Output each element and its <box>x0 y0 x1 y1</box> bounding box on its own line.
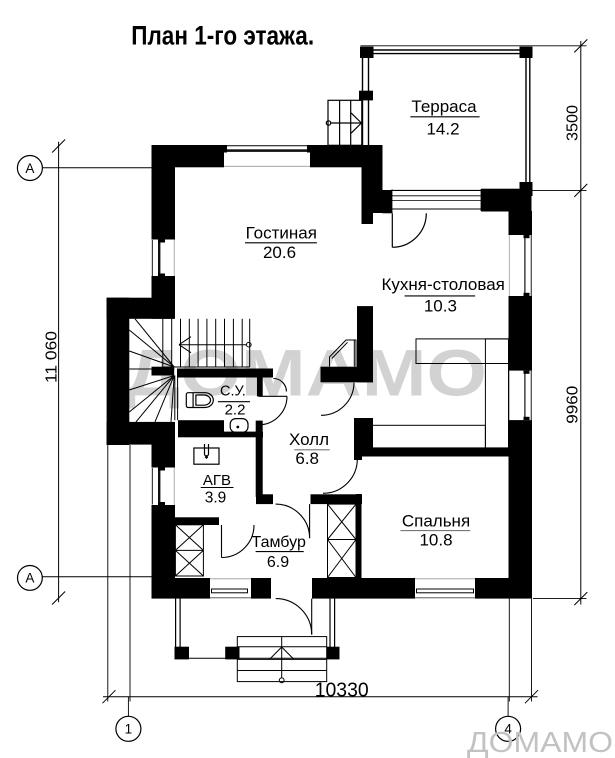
svg-text:6.9: 6.9 <box>267 554 289 571</box>
svg-text:Холл: Холл <box>289 430 329 449</box>
svg-text:10330: 10330 <box>315 680 369 702</box>
svg-text:1: 1 <box>125 722 133 737</box>
svg-text:Терраса: Терраса <box>411 97 477 116</box>
svg-text:3500: 3500 <box>565 105 582 141</box>
svg-text:С.У.: С.У. <box>220 384 246 400</box>
svg-text:План 1-го этажа.: План 1-го этажа. <box>131 21 314 51</box>
svg-text:Гостиная: Гостиная <box>246 224 317 243</box>
svg-text:10.3: 10.3 <box>424 297 457 316</box>
svg-text:А: А <box>25 571 34 586</box>
svg-text:ДОМАМО: ДОМАМО <box>467 727 613 758</box>
svg-text:Кухня-столовая: Кухня-столовая <box>381 275 504 294</box>
svg-text:3.9: 3.9 <box>205 490 227 507</box>
svg-text:Спальня: Спальня <box>402 512 470 531</box>
svg-text:11 060: 11 060 <box>44 331 61 383</box>
svg-text:2.2: 2.2 <box>225 402 246 419</box>
svg-text:6.8: 6.8 <box>295 449 319 468</box>
svg-text:АГВ: АГВ <box>203 472 231 489</box>
svg-text:20.6: 20.6 <box>263 243 296 262</box>
svg-text:14.2: 14.2 <box>426 120 459 139</box>
svg-text:Тамбур: Тамбур <box>252 534 306 551</box>
svg-text:9960: 9960 <box>565 386 582 424</box>
svg-text:А: А <box>25 161 34 176</box>
svg-text:10.8: 10.8 <box>419 531 452 550</box>
